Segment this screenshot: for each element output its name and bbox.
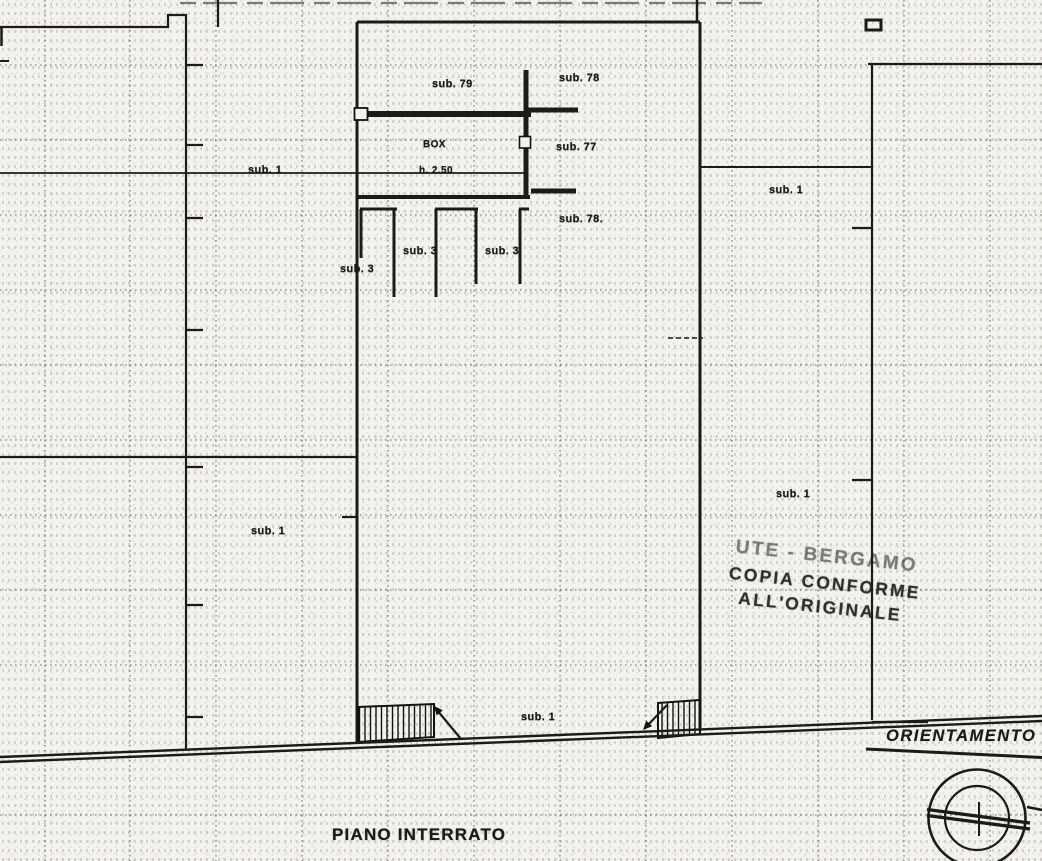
door-jamb <box>355 108 368 120</box>
room-label-sub78-mid: sub. 78. <box>559 213 603 225</box>
stall-label-sub3-1: sub. 3 <box>403 245 437 257</box>
room-label-sub77: sub. 77 <box>556 141 597 153</box>
parcel-label-sub1-left-mid: sub. 1 <box>251 525 285 537</box>
room-label-box: BOX <box>423 139 446 150</box>
parcel-label-sub1-right-upper: sub. 1 <box>769 184 803 196</box>
cadastral-plan-scan: sub. 79 sub. 78 BOX h. 2.50 sub. 77 sub.… <box>0 0 1042 861</box>
ramp-label-sub1-bottom: sub. 1 <box>521 711 555 723</box>
stall-label-sub3-outer: sub. 3 <box>340 263 374 275</box>
parcel-label-sub1-left-upper: sub. 1 <box>248 164 282 176</box>
parcel-label-sub1-right-mid: sub. 1 <box>776 488 810 500</box>
ramp-right <box>658 700 700 738</box>
boundary-marker-symbol <box>866 20 881 30</box>
door-jamb <box>520 137 531 149</box>
orientation-indicator <box>866 749 1042 861</box>
floor-title: PIANO INTERRATO <box>332 825 506 845</box>
room-height-label: h. 2.50 <box>419 165 453 176</box>
room-label-sub78-top: sub. 78 <box>559 72 600 84</box>
room-label-sub79: sub. 79 <box>432 78 473 90</box>
stall-label-sub3-2: sub. 3 <box>485 245 519 257</box>
orientation-label: ORIENTAMENTO <box>886 727 1036 746</box>
ramp-left <box>358 704 434 742</box>
scan-edge-marks <box>0 0 762 61</box>
interior-walls <box>342 70 703 517</box>
